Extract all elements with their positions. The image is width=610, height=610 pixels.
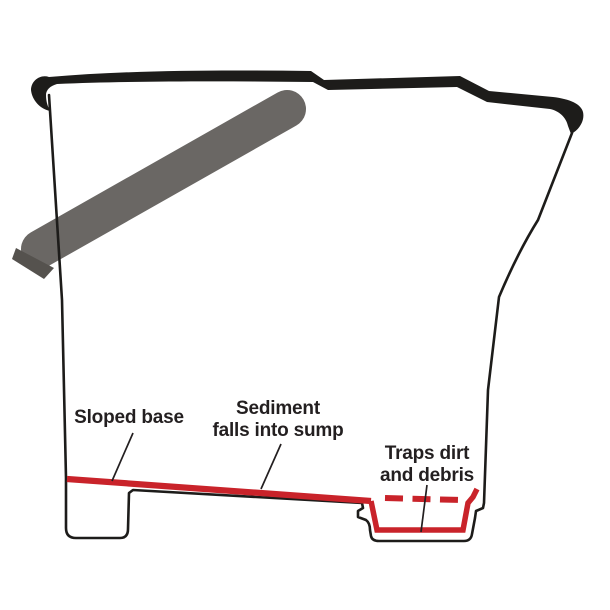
traps-label-line2: and debris xyxy=(380,465,474,487)
bucket-cutaway-diagram: Sloped base Sediment falls into sump Tra… xyxy=(0,0,610,610)
diagram-background xyxy=(0,0,610,610)
sloped-base-label: Sloped base xyxy=(74,407,184,429)
traps-label-line1: Traps dirt xyxy=(380,443,474,465)
sediment-label-line1: Sediment xyxy=(212,398,343,420)
bucket-diagram-canvas xyxy=(0,0,610,610)
sediment-label-line2: falls into sump xyxy=(212,420,343,442)
traps-label: Traps dirt and debris xyxy=(380,443,474,487)
sump-dashed-line xyxy=(385,498,461,500)
sediment-label: Sediment falls into sump xyxy=(212,398,343,442)
